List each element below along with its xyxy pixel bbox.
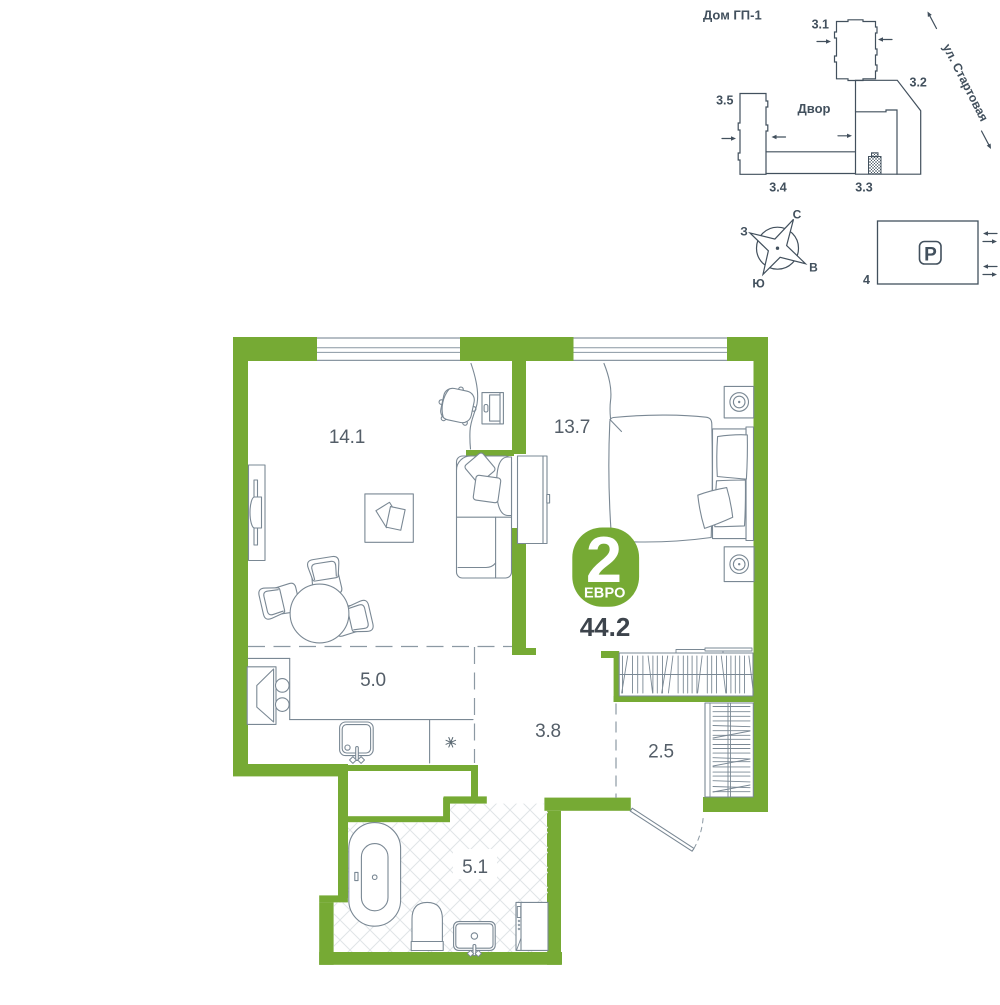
svg-text:3.8: 3.8 [535,721,561,742]
svg-text:ЕВРО: ЕВРО [584,586,626,602]
svg-text:3.1: 3.1 [812,18,829,32]
svg-text:4: 4 [863,273,870,287]
svg-text:Двор: Двор [798,101,831,116]
svg-text:13.7: 13.7 [554,417,590,438]
svg-text:3.5: 3.5 [716,94,733,108]
svg-text:Дом ГП-1: Дом ГП-1 [703,8,762,23]
svg-text:14.1: 14.1 [329,427,365,448]
svg-text:5.1: 5.1 [462,857,488,878]
svg-text:5.0: 5.0 [360,670,386,691]
svg-text:3.4: 3.4 [769,181,786,195]
svg-text:3.2: 3.2 [910,76,927,90]
svg-text:Ю: Ю [752,277,764,291]
svg-text:44.2: 44.2 [580,612,631,642]
svg-text:З: З [740,225,748,239]
svg-text:С: С [793,208,802,222]
svg-text:2.5: 2.5 [648,742,674,763]
svg-text:P: P [924,244,937,265]
svg-text:3.3: 3.3 [855,181,872,195]
svg-text:В: В [809,261,818,275]
